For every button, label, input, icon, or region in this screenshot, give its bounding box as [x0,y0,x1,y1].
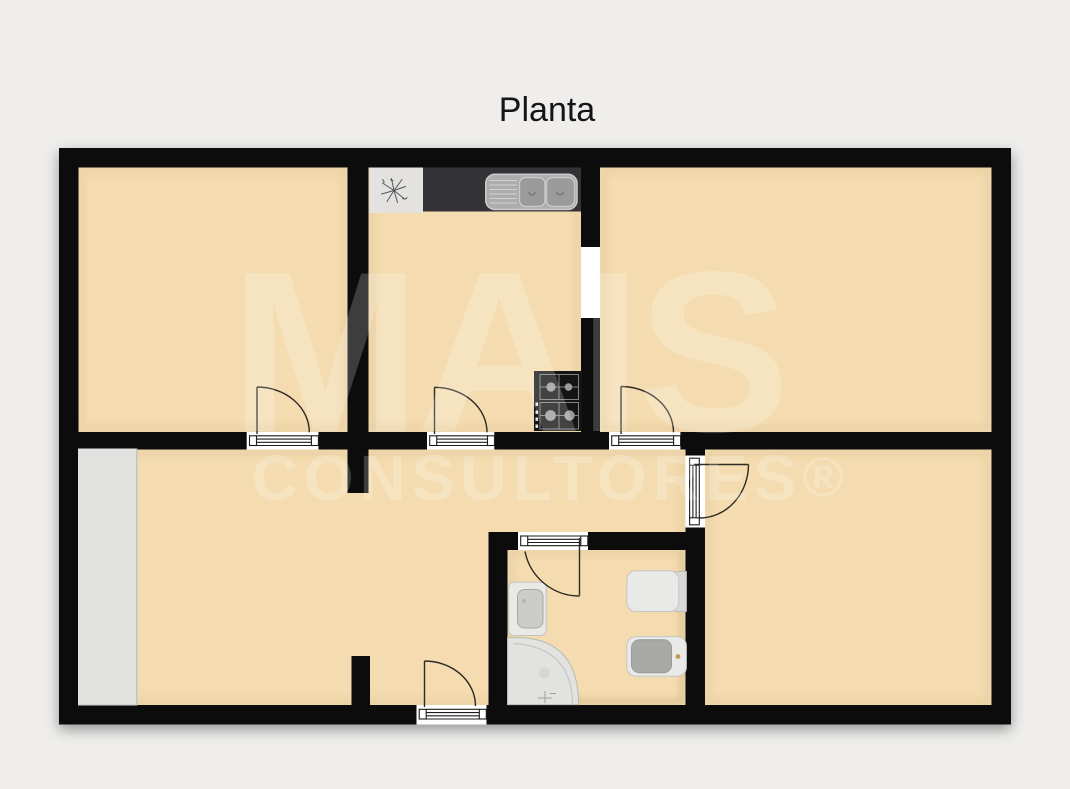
svg-text:Planta: Planta [499,91,595,129]
svg-text:CONSULTORES: CONSULTORES [252,442,803,514]
svg-text:®: ® [802,445,843,508]
